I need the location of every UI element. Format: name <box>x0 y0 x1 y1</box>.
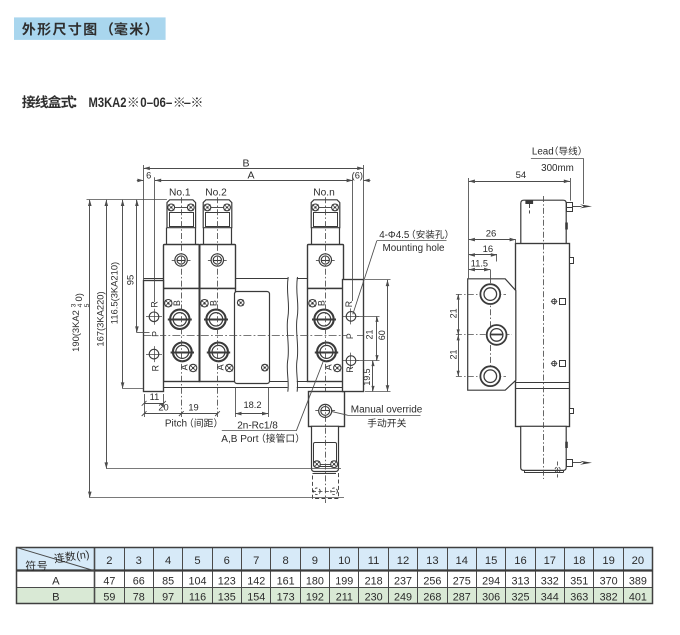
svg-text:8: 8 <box>282 555 288 567</box>
svg-text:B: B <box>52 592 59 604</box>
svg-text:370: 370 <box>600 576 618 588</box>
svg-text:5: 5 <box>84 303 91 307</box>
svg-text:275: 275 <box>453 576 471 588</box>
svg-text:192: 192 <box>306 592 324 604</box>
svg-text:237: 237 <box>394 576 412 588</box>
svg-text:382: 382 <box>600 592 618 604</box>
svg-text:95: 95 <box>124 275 135 285</box>
svg-text:190(3KA2: 190(3KA2 <box>70 310 81 352</box>
svg-text:294: 294 <box>482 576 500 588</box>
svg-text:332: 332 <box>541 576 559 588</box>
svg-text:A: A <box>247 170 254 182</box>
svg-text:389: 389 <box>629 576 647 588</box>
svg-text:17: 17 <box>544 555 556 567</box>
svg-text:R: R <box>150 365 160 371</box>
svg-text:154: 154 <box>247 592 265 604</box>
svg-text:P: P <box>345 333 355 339</box>
svg-text:26: 26 <box>486 229 497 240</box>
svg-text:116.5(3KA210): 116.5(3KA210) <box>108 262 119 324</box>
svg-text:12: 12 <box>397 555 409 567</box>
svg-text:11: 11 <box>150 392 160 402</box>
svg-text:No.2: No.2 <box>205 188 227 199</box>
svg-text:401: 401 <box>629 592 647 604</box>
svg-text:A,B Port: A,B Port <box>221 434 258 445</box>
svg-text:5: 5 <box>194 555 200 567</box>
svg-text:15: 15 <box>485 555 497 567</box>
svg-text:161: 161 <box>277 576 295 588</box>
svg-text:104: 104 <box>188 576 206 588</box>
svg-text:18: 18 <box>573 555 585 567</box>
svg-text:Manual override: Manual override <box>351 404 423 415</box>
svg-text:249: 249 <box>394 592 412 604</box>
svg-text:11.5: 11.5 <box>471 259 488 269</box>
svg-text:4-Φ4.5: 4-Φ4.5 <box>379 230 410 241</box>
svg-text:B: B <box>208 300 218 306</box>
svg-text:287: 287 <box>453 592 471 604</box>
svg-text:(n): (n) <box>75 549 90 563</box>
svg-text:0): 0) <box>73 293 84 301</box>
svg-text:A: A <box>324 364 334 370</box>
svg-text:167(3KA220): 167(3KA220) <box>95 291 106 346</box>
svg-text:13: 13 <box>426 555 438 567</box>
svg-text:19: 19 <box>602 555 614 567</box>
svg-text:P: P <box>150 331 160 337</box>
svg-text:R: R <box>344 301 354 307</box>
svg-text:A: A <box>52 576 60 588</box>
svg-text:85: 85 <box>162 576 174 588</box>
svg-text:3: 3 <box>136 555 142 567</box>
svg-text:300mm: 300mm <box>541 163 574 174</box>
svg-text:21: 21 <box>364 329 374 339</box>
svg-text:351: 351 <box>570 576 588 588</box>
svg-text:230: 230 <box>365 592 383 604</box>
svg-text:R: R <box>150 301 160 307</box>
svg-text:123: 123 <box>218 576 236 588</box>
svg-text:18.2: 18.2 <box>243 400 261 410</box>
svg-text:16: 16 <box>514 555 526 567</box>
svg-text:211: 211 <box>336 592 353 604</box>
svg-text:306: 306 <box>482 592 500 604</box>
svg-text:B: B <box>242 157 249 169</box>
svg-text:19: 19 <box>188 403 198 413</box>
svg-text:180: 180 <box>306 576 324 588</box>
svg-text:14: 14 <box>455 555 467 567</box>
svg-text:47: 47 <box>103 576 115 588</box>
svg-text:2: 2 <box>106 555 112 567</box>
svg-text:59: 59 <box>103 592 115 604</box>
svg-text:11: 11 <box>368 555 380 567</box>
svg-text:325: 325 <box>511 592 529 604</box>
svg-text:7: 7 <box>253 555 259 567</box>
svg-text:B: B <box>316 300 326 306</box>
svg-text:60: 60 <box>377 330 387 340</box>
svg-text:256: 256 <box>423 576 441 588</box>
svg-text:No.n: No.n <box>313 188 335 199</box>
svg-text:Pitch: Pitch <box>165 419 187 430</box>
svg-text:66: 66 <box>133 576 145 588</box>
svg-text:142: 142 <box>247 576 265 588</box>
svg-text:19.5: 19.5 <box>362 368 372 385</box>
svg-text:10: 10 <box>338 555 350 567</box>
svg-text:54: 54 <box>516 170 527 181</box>
svg-text:Mounting hole: Mounting hole <box>383 243 446 254</box>
svg-text:313: 313 <box>511 576 529 588</box>
svg-text:6: 6 <box>224 555 230 567</box>
svg-text:M3KA2: M3KA2 <box>89 95 127 110</box>
svg-text:B: B <box>172 300 182 306</box>
svg-text:21: 21 <box>448 308 458 318</box>
svg-text:218: 218 <box>365 576 383 588</box>
svg-text:268: 268 <box>423 592 441 604</box>
svg-text:4: 4 <box>165 555 171 567</box>
svg-text:(6): (6) <box>352 170 363 180</box>
svg-text:A: A <box>216 364 226 370</box>
svg-text:–: – <box>184 95 191 110</box>
svg-text:20: 20 <box>632 555 644 567</box>
svg-text:97: 97 <box>162 592 174 604</box>
svg-text:173: 173 <box>277 592 295 604</box>
svg-text:21: 21 <box>448 349 458 359</box>
svg-text:R: R <box>345 366 355 372</box>
svg-text:135: 135 <box>218 592 236 604</box>
svg-text:Lead: Lead <box>532 147 554 158</box>
svg-text:9: 9 <box>312 555 318 567</box>
svg-text:363: 363 <box>570 592 588 604</box>
svg-text:78: 78 <box>133 592 145 604</box>
svg-text:A: A <box>179 364 189 370</box>
svg-text:0–06–: 0–06– <box>140 95 172 110</box>
svg-text:2n-Rc1/8: 2n-Rc1/8 <box>237 420 278 431</box>
svg-text:6: 6 <box>146 170 151 180</box>
svg-text:116: 116 <box>189 592 206 604</box>
svg-text:199: 199 <box>335 576 353 588</box>
svg-text:344: 344 <box>541 592 559 604</box>
svg-text:No.1: No.1 <box>169 188 191 199</box>
